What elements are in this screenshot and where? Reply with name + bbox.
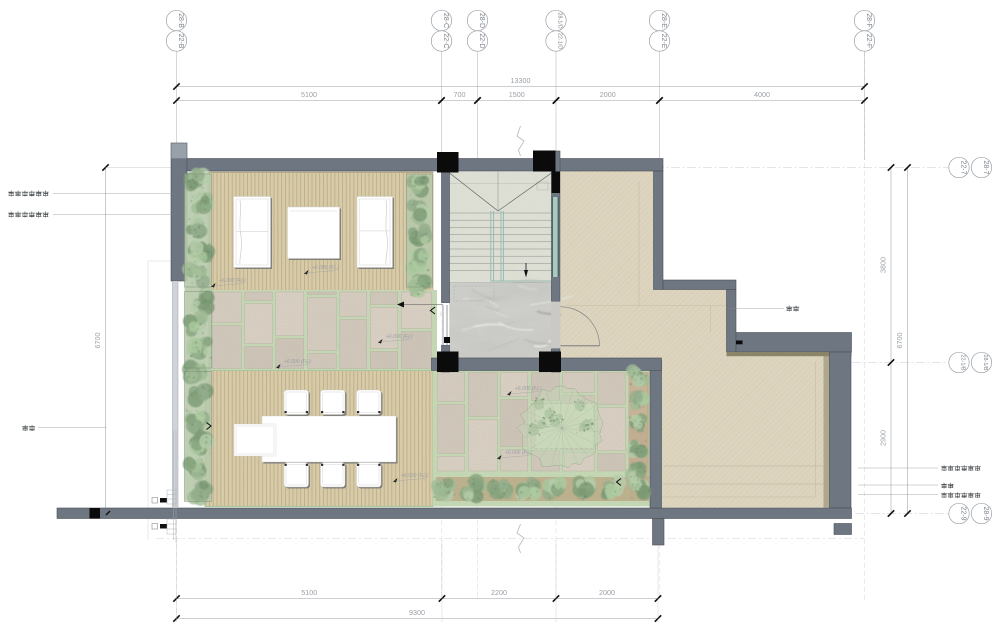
svg-text:9300: 9300 bbox=[409, 608, 425, 617]
svg-text:+6.000 (F.L): +6.000 (F.L) bbox=[401, 473, 428, 479]
svg-text:+6.000 (F.L): +6.000 (F.L) bbox=[219, 278, 246, 284]
svg-text:22-C: 22-C bbox=[442, 33, 449, 48]
svg-text:+6.000 (F.L): +6.000 (F.L) bbox=[515, 386, 542, 392]
svg-text:22-B: 22-B bbox=[177, 34, 184, 49]
svg-text:22-1/D: 22-1/D bbox=[556, 33, 562, 49]
svg-text:5100: 5100 bbox=[301, 588, 317, 597]
svg-text:2000: 2000 bbox=[599, 588, 615, 597]
svg-text:6700: 6700 bbox=[93, 333, 102, 349]
svg-text:13300: 13300 bbox=[511, 76, 531, 85]
svg-text:4000: 4000 bbox=[754, 90, 770, 99]
svg-text:22-7: 22-7 bbox=[959, 160, 966, 174]
svg-text:3800: 3800 bbox=[879, 257, 888, 273]
svg-text:6700: 6700 bbox=[895, 333, 904, 349]
svg-text:28-F: 28-F bbox=[865, 13, 872, 27]
svg-text:1500: 1500 bbox=[509, 90, 525, 99]
svg-text:22-1/B: 22-1/B bbox=[959, 355, 965, 371]
svg-text:22-E: 22-E bbox=[660, 34, 667, 49]
svg-text:28-7: 28-7 bbox=[982, 160, 989, 174]
svg-text:28-1/B: 28-1/B bbox=[982, 355, 988, 371]
svg-text:28-1/D: 28-1/D bbox=[556, 12, 562, 28]
svg-text:28-B: 28-B bbox=[177, 13, 184, 28]
svg-text:28-E: 28-E bbox=[660, 13, 667, 28]
svg-text:2200: 2200 bbox=[491, 588, 507, 597]
svg-text:2900: 2900 bbox=[879, 430, 888, 446]
svg-text:22-9: 22-9 bbox=[959, 506, 966, 520]
svg-text:22-D: 22-D bbox=[478, 33, 485, 48]
svg-text:2000: 2000 bbox=[600, 90, 616, 99]
svg-text:22-F: 22-F bbox=[865, 34, 872, 48]
svg-text:+6.000 (F.L): +6.000 (F.L) bbox=[505, 450, 532, 456]
svg-text:28-9: 28-9 bbox=[982, 506, 989, 520]
svg-text:28-D: 28-D bbox=[478, 13, 485, 28]
svg-text:+6.000 (F.L): +6.000 (F.L) bbox=[312, 265, 339, 271]
svg-text:+6.000 (F.L): +6.000 (F.L) bbox=[284, 359, 311, 365]
svg-text:28-C: 28-C bbox=[442, 13, 449, 28]
svg-text:700: 700 bbox=[454, 90, 466, 99]
svg-text:+6.000 (F.L): +6.000 (F.L) bbox=[386, 334, 413, 340]
svg-text:5100: 5100 bbox=[301, 90, 317, 99]
